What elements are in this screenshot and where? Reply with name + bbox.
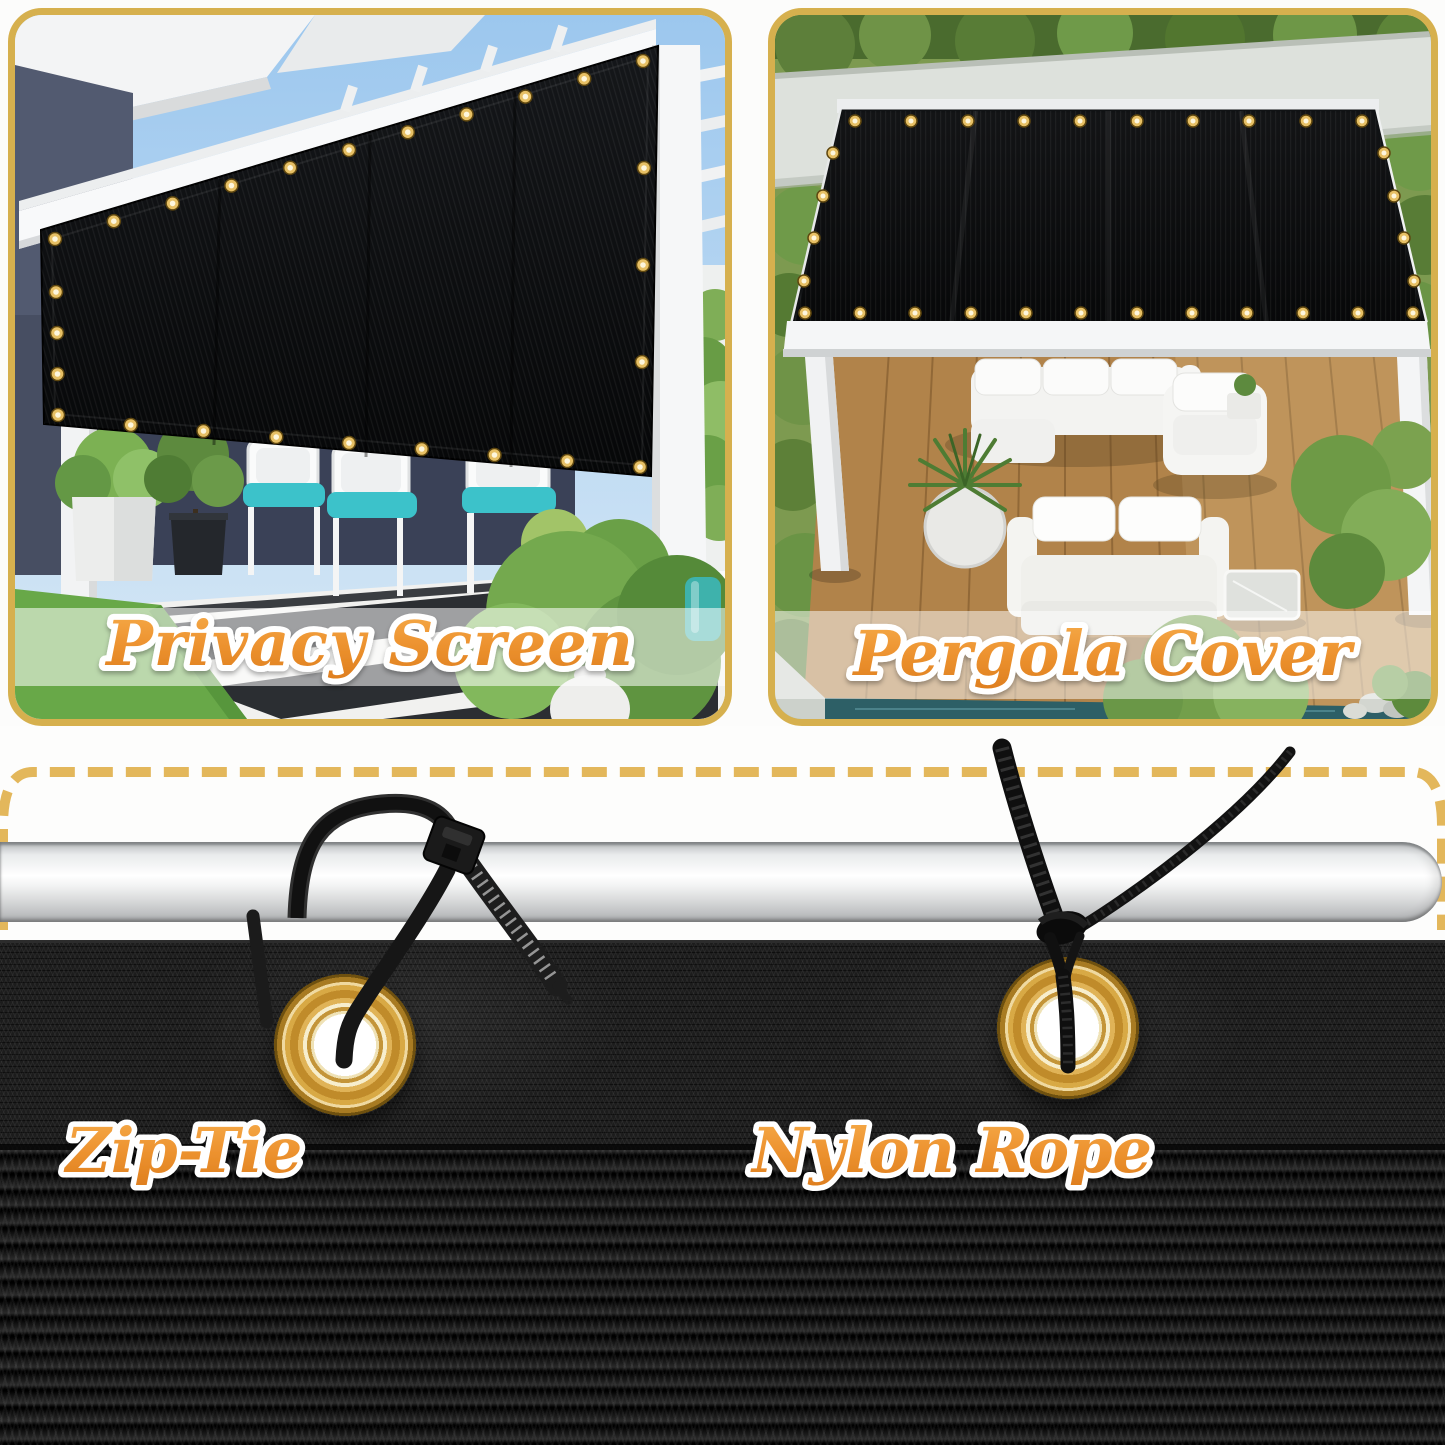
fasteners-overlay: Zip-Tie Nylon Rope [0,726,1445,1445]
zip-tie-graphic [253,803,568,1060]
installation-panel: Zip-Tie Nylon Rope [0,726,1445,1445]
zip-tie-label: Zip-Tie [63,1114,303,1187]
privacy-screen-label: Privacy Screen [104,607,634,680]
privacy-screen-photo: Privacy Screen [15,15,725,719]
product-feature-collage: Privacy Screen [0,0,1445,1445]
pergola-cover-photo: Pergola Cover [775,15,1431,719]
nylon-rope-label: Nylon Rope [750,1114,1152,1187]
pergola-cover-panel: Pergola Cover [768,8,1438,726]
nylon-rope-graphic [1002,748,1290,1066]
privacy-screen-panel: Privacy Screen [8,8,732,726]
pergola-cover-fabric [794,111,1424,323]
pergola-cover-label: Pergola Cover [852,617,1356,690]
